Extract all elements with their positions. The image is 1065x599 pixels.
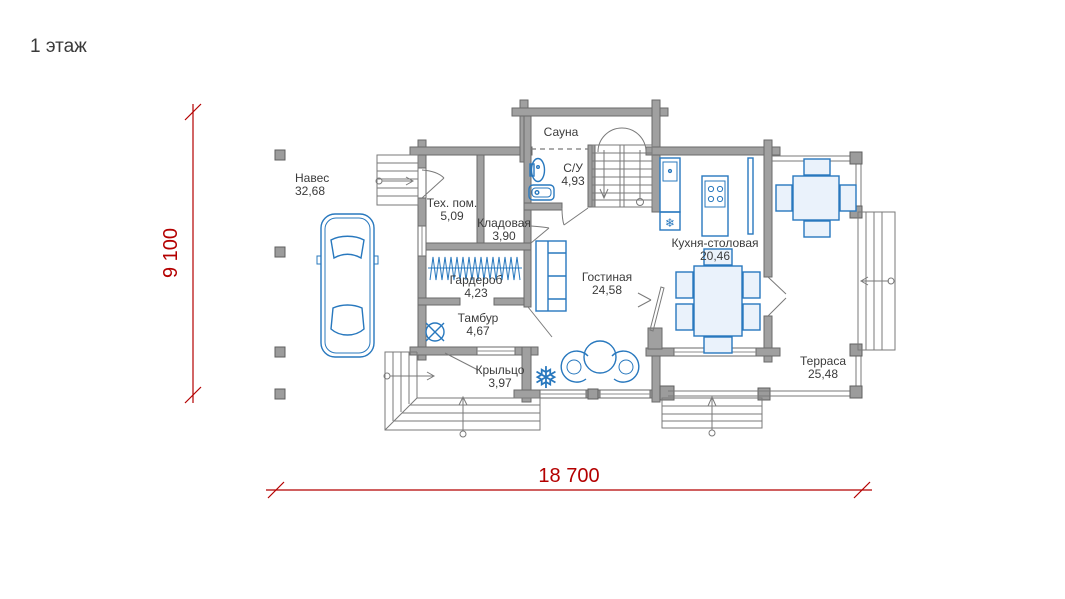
wall: [524, 203, 562, 210]
living-room-furniture: ❅: [533, 241, 638, 396]
chair: [676, 304, 693, 330]
wall: [648, 328, 662, 349]
chair: [743, 304, 760, 330]
bar-counter: [748, 158, 753, 234]
dimension-horizontal-label: 18 700: [538, 465, 599, 487]
post: [850, 152, 862, 164]
wall: [512, 108, 668, 116]
carport: [275, 150, 378, 399]
toilet: [530, 159, 545, 182]
carport-post: [275, 247, 285, 257]
floor-drain-icon: [426, 323, 444, 341]
room-area-garderob: 4,23: [464, 286, 488, 300]
chair: [804, 159, 830, 175]
dining-table-set: [676, 249, 760, 353]
terrace-table: [793, 176, 839, 220]
plant-icon: ❅: [533, 361, 558, 396]
chair: [704, 337, 732, 353]
room-label-gostinaya: Гостиная: [582, 270, 632, 284]
chair: [840, 185, 856, 211]
room-label-teh-pom: Тех. пом.: [427, 196, 478, 210]
wall: [410, 347, 538, 355]
wall: [477, 155, 484, 250]
open-door-leaf: [638, 287, 664, 331]
terrace-bottom-steps: [662, 397, 762, 436]
room-label-kuhnya: Кухня-столовая: [671, 236, 758, 250]
wall: [418, 298, 460, 305]
post: [588, 389, 598, 399]
room-area-teh-pom: 5,09: [440, 209, 464, 223]
room-area-kladovaya: 3,90: [492, 229, 516, 243]
chair: [743, 272, 760, 298]
chair: [676, 272, 693, 298]
page-title: 1 этаж: [30, 36, 87, 57]
room-label-sauna: Сауна: [544, 125, 579, 139]
chair: [804, 221, 830, 237]
room-label-terrasa: Терраса: [800, 354, 846, 368]
carport-post: [275, 150, 285, 160]
room-area-kryltso: 3,97: [488, 376, 512, 390]
coffee-table: [584, 341, 616, 373]
left-entry-stairs: [376, 155, 418, 205]
wall: [524, 250, 531, 307]
terrace-side-stairs: [858, 212, 895, 350]
fridge-icon: ❄: [665, 216, 675, 230]
post: [850, 386, 862, 398]
room-area-naves: 32,68: [295, 184, 325, 198]
wall: [418, 243, 531, 250]
floor-plan-page: 1 этаж 9 100 18 700: [0, 0, 1065, 599]
kitchen-island: [702, 176, 728, 236]
dining-table: [694, 266, 742, 336]
door-opening: [418, 168, 426, 198]
room-area-gostinaya: 24,58: [592, 283, 622, 297]
room-area-kuhnya: 20,46: [700, 249, 730, 263]
carport-post: [275, 347, 285, 357]
bathroom-fixtures: [529, 159, 554, 201]
bathtub: [529, 185, 554, 200]
room-label-su: С/У: [563, 161, 583, 175]
dimension-vertical-label: 9 100: [160, 228, 182, 278]
room-label-kryltso: Крыльцо: [476, 363, 525, 377]
floor-plan-drawing: 1 этаж 9 100 18 700: [0, 0, 1065, 599]
room-label-naves: Навес: [295, 171, 329, 185]
wall: [652, 100, 660, 212]
room-label-tambur: Тамбур: [458, 311, 499, 325]
wall: [646, 147, 780, 155]
room-area-su: 4,93: [561, 174, 585, 188]
main-staircase: [592, 128, 652, 207]
dimension-vertical: 9 100: [160, 104, 201, 403]
carport-post: [275, 389, 285, 399]
room-label-garderob: Гардероб: [450, 273, 503, 287]
stove: [705, 181, 725, 207]
wall: [410, 147, 532, 155]
room-area-tambur: 4,67: [466, 324, 490, 338]
car: [317, 214, 378, 357]
terrace-table-set: [776, 159, 856, 237]
dimension-horizontal: 18 700: [266, 465, 872, 498]
wall: [764, 140, 772, 277]
room-label-kladovaya: Кладовая: [477, 216, 531, 230]
sink: [663, 162, 677, 181]
kitchen-fixtures: ❄: [660, 158, 753, 236]
sofa: [536, 241, 566, 311]
chair: [776, 185, 792, 211]
room-area-terrasa: 25,48: [808, 367, 838, 381]
